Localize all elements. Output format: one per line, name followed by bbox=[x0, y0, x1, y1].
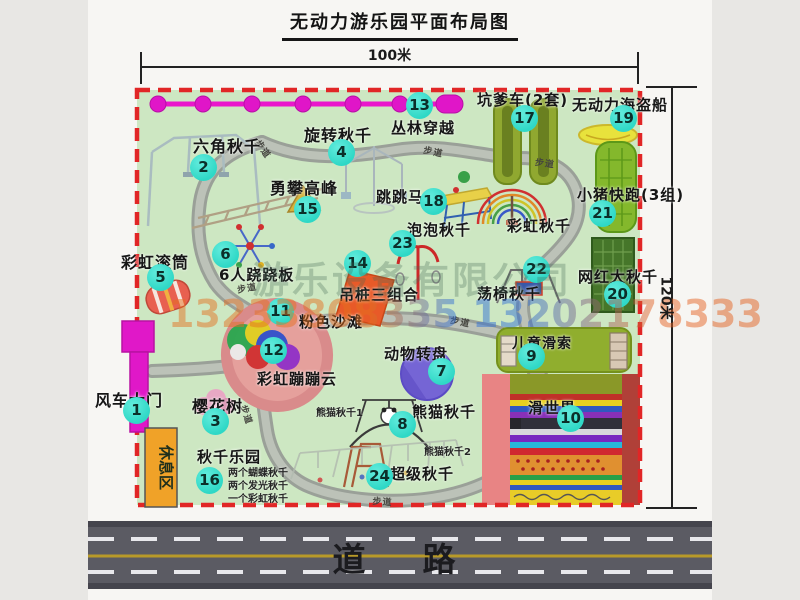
attraction-badge-21: 21 bbox=[589, 200, 616, 227]
attraction-badge-5: 5 bbox=[147, 264, 174, 291]
attraction-label-21: 小猪快跑(3组) bbox=[577, 184, 684, 205]
attraction-label-14: 吊桩三组合 bbox=[339, 284, 419, 305]
attraction-badge-13: 13 bbox=[406, 92, 433, 119]
attraction-badge-15: 15 bbox=[294, 196, 321, 223]
attraction-badge-17: 17 bbox=[511, 105, 538, 132]
attraction-badge-9: 9 bbox=[518, 343, 545, 370]
attraction-label-rainbow-swing: 彩虹秋千 bbox=[507, 215, 571, 236]
attraction-label-24: 超级秋千 bbox=[390, 463, 454, 484]
attraction-badge-1: 1 bbox=[123, 397, 150, 424]
attraction-badge-4: 4 bbox=[328, 139, 355, 166]
attraction-badge-14: 14 bbox=[344, 250, 371, 277]
park-layout-map: 无动力游乐园平面布局图 100米 120米 休息区 道 路 游乐设备有限公司 1… bbox=[0, 0, 800, 600]
note-label-1: 熊猫秋千2 bbox=[424, 443, 471, 458]
attraction-badge-3: 3 bbox=[202, 408, 229, 435]
attraction-label-13: 丛林穿越 bbox=[391, 117, 455, 138]
attraction-badge-22: 22 bbox=[523, 256, 550, 283]
height-dimension-label: 120米 bbox=[657, 276, 677, 319]
attraction-badge-10: 10 bbox=[557, 405, 584, 432]
note-label-0: 熊猫秋千1 bbox=[316, 404, 363, 419]
attraction-badge-24: 24 bbox=[366, 463, 393, 490]
note-label-4: 一个彩虹秋千 bbox=[228, 490, 288, 505]
attraction-label-22: 荡椅秋千 bbox=[477, 283, 541, 304]
attraction-badge-16: 16 bbox=[196, 467, 223, 494]
attraction-badge-18: 18 bbox=[420, 188, 447, 215]
walkway-label-6: 步道 bbox=[372, 494, 393, 508]
attraction-badge-8: 8 bbox=[389, 411, 416, 438]
attraction-badge-2: 2 bbox=[190, 154, 217, 181]
width-dimension-label: 100米 bbox=[141, 45, 638, 65]
attraction-label-23: 泡泡秋千 bbox=[407, 219, 471, 240]
slide-world-icon bbox=[482, 374, 640, 505]
attraction-badge-20: 20 bbox=[604, 281, 631, 308]
attraction-badge-19: 19 bbox=[610, 105, 637, 132]
attraction-label-8: 熊猫秋千 bbox=[412, 401, 476, 422]
attraction-badge-11: 11 bbox=[267, 298, 294, 325]
attraction-badge-6: 6 bbox=[212, 241, 239, 268]
page-title: 无动力游乐园平面布局图 bbox=[282, 8, 518, 41]
attraction-label-18: 跳跳马 bbox=[376, 186, 424, 207]
attraction-label-12: 彩虹蹦蹦云 bbox=[257, 368, 337, 389]
attraction-badge-7: 7 bbox=[428, 358, 455, 385]
attraction-label-6: 6人跷跷板 bbox=[219, 264, 294, 285]
attraction-label-11: 粉色沙滩 bbox=[299, 311, 363, 332]
rest-area-label: 休息区 bbox=[147, 432, 177, 504]
attraction-badge-23: 23 bbox=[389, 230, 416, 257]
road-label: 道 路 bbox=[88, 533, 712, 581]
attraction-badge-12: 12 bbox=[260, 337, 287, 364]
walkway-label-2: 步道 bbox=[534, 155, 556, 171]
